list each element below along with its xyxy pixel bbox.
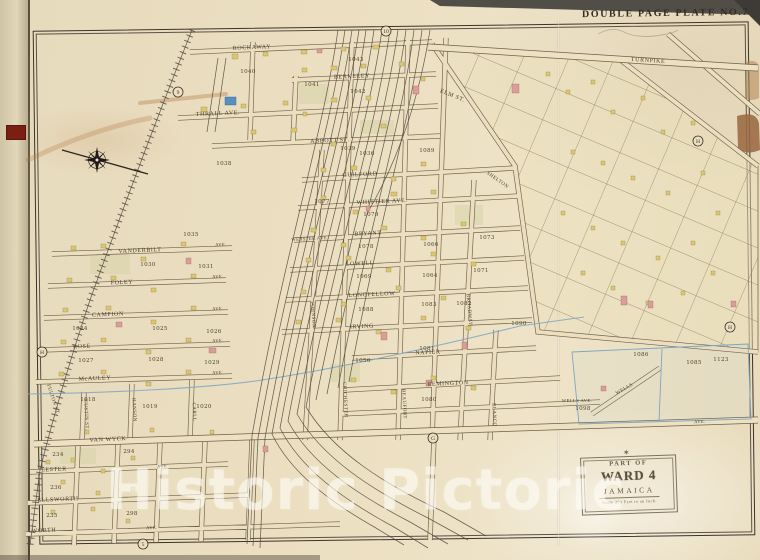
block-number: 1039 — [340, 146, 356, 152]
street-label-worth: WORTH — [32, 527, 57, 534]
ave-suffix: AVE. — [212, 274, 224, 280]
street-label-irving: IRVING — [350, 323, 374, 330]
ave-suffix: AVE. — [212, 306, 224, 312]
block-number: 1056 — [355, 358, 371, 364]
street-label-berkeley: BERKELEY — [334, 73, 370, 81]
ref-mark: 5 — [142, 542, 145, 548]
building-marker-blue — [225, 97, 236, 105]
street-label-turnpike: TURNPIKE — [631, 57, 666, 65]
compass-rose — [62, 147, 148, 174]
street-label-wells-ave: WELLS AVE. — [562, 398, 592, 403]
block-number: 1078 — [358, 244, 374, 250]
ref-mark: G — [431, 436, 435, 442]
cartouche-ward: WARD 4 — [581, 466, 676, 485]
ref-mark: H — [696, 139, 700, 145]
block-number: 1030 — [140, 262, 156, 268]
block-number: 1041 — [304, 82, 319, 88]
block-number: 1089 — [419, 148, 435, 154]
block-number: 1029 — [204, 360, 220, 366]
block-number: 1027 — [78, 358, 94, 364]
block-number: 1043 — [348, 57, 364, 63]
block-number: 1090 — [511, 321, 527, 327]
street-label-foley: FOLEY — [111, 280, 134, 287]
cartouche-rule — [599, 496, 659, 499]
pencil-scribble — [598, 29, 678, 36]
block-number: 1028 — [148, 357, 164, 363]
block-number: 294 — [123, 449, 135, 455]
block-number: 236 — [50, 485, 62, 491]
block-number: 1020 — [196, 404, 212, 410]
block-number: 1079 — [363, 212, 379, 218]
cartouche-scale-note: Scale 200 Feet to an Inch. — [583, 497, 677, 505]
cartouche-star-ornament: ✶ — [623, 448, 630, 457]
title-cartouche: ✶ PART OF WARD 4 JAMAICA Scale 200 Feet … — [580, 454, 678, 515]
block-number: 1026 — [206, 329, 222, 335]
block-number: 1036 — [359, 151, 375, 157]
block-number: 1064 — [422, 273, 438, 279]
ref-mark: 9 — [177, 90, 180, 96]
ave-suffix: AVE. — [212, 370, 224, 376]
block-number: 1018 — [80, 397, 96, 403]
street-label-lester: LESTER — [41, 466, 67, 473]
ave-suffix: AVE. — [215, 242, 227, 248]
ref-mark: 10 — [383, 29, 389, 35]
ref-mark: H — [728, 325, 732, 331]
block-number: 1098 — [575, 406, 591, 412]
scanned-atlas-page: DOUBLE PAGE PLATE NO.7 — [0, 0, 760, 560]
ave-suffix: AVE. — [157, 464, 169, 470]
block-number: 1042 — [350, 89, 366, 95]
block-number: 1080 — [421, 397, 437, 403]
block-number: 1038 — [216, 161, 232, 167]
ave-suffix: AVE. — [146, 525, 158, 531]
torn-paper-patch — [737, 114, 760, 152]
block-number: 1025 — [152, 326, 168, 332]
block-number: 1088 — [358, 307, 374, 313]
block-number: 1031 — [198, 264, 213, 270]
block-number: 1069 — [356, 274, 372, 280]
block-number: 1066 — [423, 242, 439, 248]
block-number: 1083 — [421, 302, 437, 308]
cartouche-part-of: PART OF — [581, 458, 675, 468]
ave-suffix: AVE. — [212, 338, 224, 344]
cartouche-place: JAMAICA — [582, 484, 676, 496]
street-label-rose: ROSE — [73, 344, 91, 351]
block-number: 1019 — [142, 404, 158, 410]
street-label-lowell: LOWELL — [346, 260, 375, 267]
blue-outlined-parcels — [572, 344, 751, 424]
block-number: 1123 — [713, 357, 729, 363]
block-number: 298 — [126, 511, 138, 517]
block-number: 1024 — [72, 326, 88, 332]
ref-mark: H — [40, 350, 44, 356]
street-label-vanderbilt: VANDERBILT — [118, 247, 161, 255]
block-number: 1073 — [479, 235, 495, 241]
block-number: 1082 — [456, 301, 472, 307]
block-number: 1040 — [240, 69, 256, 75]
block-number: 1086 — [633, 352, 649, 358]
ave-suffix: AVE. — [694, 419, 706, 424]
street-label-longfellow: LONGFELLOW — [348, 291, 395, 299]
block-number: 1035 — [183, 232, 199, 238]
block-number: 235 — [46, 513, 58, 519]
block-number: 1081 — [419, 346, 434, 352]
street-label-bryant: BRYANT — [354, 230, 382, 237]
block-number: 234 — [52, 452, 64, 458]
block-number: 1077 — [314, 199, 330, 205]
block-number: 1085 — [686, 360, 702, 366]
block-number: 1071 — [473, 268, 488, 274]
street-label-shelton: SHELTON — [485, 171, 509, 190]
street-label-fulton: FULTON ST. — [45, 384, 60, 416]
